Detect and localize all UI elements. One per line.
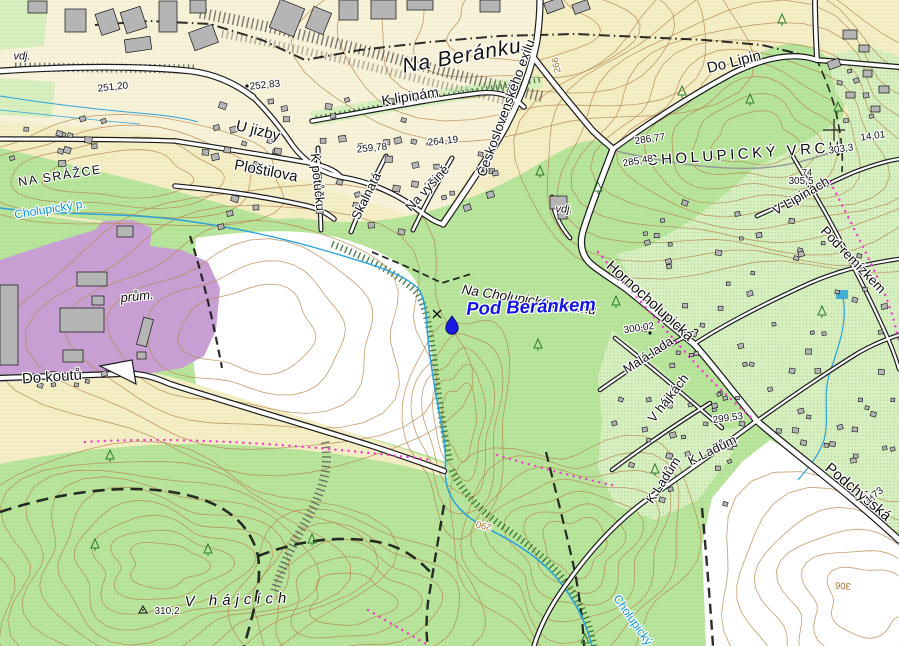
house	[717, 392, 722, 396]
house	[330, 113, 336, 118]
house	[59, 375, 66, 381]
house	[250, 167, 257, 173]
house	[843, 119, 848, 123]
house	[268, 99, 274, 104]
house	[682, 303, 687, 308]
house	[353, 202, 359, 207]
house	[666, 453, 673, 460]
house	[253, 161, 259, 166]
building	[77, 272, 107, 286]
house	[739, 421, 745, 426]
house	[821, 242, 825, 245]
house	[881, 303, 888, 309]
house	[281, 105, 288, 111]
house	[732, 442, 737, 446]
house	[726, 282, 730, 286]
house	[767, 387, 773, 392]
building	[117, 226, 133, 237]
house	[646, 438, 651, 442]
house	[227, 210, 234, 216]
house	[320, 138, 326, 143]
house	[394, 137, 402, 145]
house	[267, 139, 273, 144]
house	[681, 435, 685, 439]
building	[879, 86, 889, 93]
house	[84, 137, 92, 144]
house	[67, 133, 73, 138]
house	[891, 398, 895, 402]
house	[646, 397, 651, 402]
house	[450, 191, 455, 195]
house	[751, 271, 755, 275]
house	[666, 264, 671, 269]
house	[718, 306, 723, 310]
house	[398, 229, 405, 236]
building	[190, 0, 206, 13]
house	[792, 427, 799, 433]
building	[137, 352, 146, 359]
house	[211, 153, 220, 161]
building	[846, 92, 855, 98]
house	[325, 103, 332, 109]
house	[829, 441, 835, 446]
house	[58, 160, 66, 166]
house	[805, 349, 811, 354]
building	[65, 9, 86, 32]
building	[550, 196, 567, 209]
house	[739, 237, 743, 240]
building	[0, 285, 18, 365]
house	[412, 162, 420, 169]
house	[878, 369, 885, 375]
house	[715, 250, 722, 256]
building	[371, 0, 396, 19]
house	[688, 403, 693, 407]
house	[316, 208, 323, 214]
house	[492, 170, 498, 176]
house	[676, 351, 680, 355]
house	[441, 195, 447, 200]
house	[202, 149, 209, 155]
house	[338, 135, 346, 142]
house	[411, 139, 417, 144]
house	[882, 446, 887, 451]
house	[793, 256, 799, 261]
topographic-map[interactable]: Na BeránkuDo LipinCHOLUPICKÝ VRCHNa Chol…	[0, 0, 899, 646]
house	[756, 232, 762, 238]
house	[715, 466, 720, 470]
building	[558, 212, 567, 219]
house	[735, 211, 741, 216]
house	[776, 428, 782, 433]
house	[878, 330, 883, 334]
house	[411, 181, 419, 188]
house	[478, 152, 483, 157]
house	[798, 408, 805, 414]
house	[224, 147, 231, 154]
house	[857, 253, 862, 258]
building	[28, 1, 47, 13]
house	[852, 427, 858, 432]
building	[407, 0, 433, 10]
house	[259, 169, 265, 174]
house	[85, 379, 89, 383]
house	[772, 322, 776, 326]
house	[24, 127, 29, 131]
house	[738, 343, 744, 349]
house	[847, 69, 852, 73]
building	[159, 1, 177, 32]
house	[654, 233, 659, 237]
building	[871, 106, 880, 112]
house	[822, 332, 826, 336]
house	[384, 140, 390, 145]
house	[835, 290, 840, 294]
house	[641, 327, 647, 332]
building	[863, 70, 872, 77]
house	[389, 99, 394, 104]
house	[392, 185, 400, 192]
house	[274, 148, 281, 154]
house	[789, 368, 796, 374]
house	[853, 454, 858, 458]
house	[863, 93, 869, 98]
house	[385, 156, 393, 163]
house	[50, 371, 56, 376]
house	[865, 406, 870, 410]
building	[63, 350, 83, 362]
building	[339, 0, 358, 20]
house	[74, 383, 79, 387]
house	[368, 222, 375, 228]
house	[815, 368, 821, 373]
house	[810, 331, 814, 335]
house	[660, 218, 665, 222]
house	[712, 403, 718, 409]
house	[434, 164, 440, 169]
house	[668, 243, 672, 247]
map-canvas	[0, 0, 899, 646]
house	[862, 287, 867, 292]
house	[642, 427, 648, 432]
house	[253, 205, 259, 210]
house	[806, 415, 811, 419]
house	[51, 382, 56, 386]
house	[858, 398, 863, 402]
house	[800, 440, 807, 446]
building	[859, 45, 869, 52]
house	[670, 363, 675, 368]
house	[742, 362, 747, 367]
building	[60, 308, 104, 332]
building	[843, 30, 857, 39]
house	[218, 224, 225, 230]
building	[480, 0, 500, 12]
house	[689, 353, 693, 357]
house	[869, 114, 874, 119]
house	[703, 422, 708, 426]
house	[789, 218, 795, 223]
house	[723, 396, 728, 400]
house	[690, 331, 697, 337]
building	[92, 296, 104, 305]
house	[824, 443, 829, 447]
house	[700, 323, 705, 327]
house	[667, 403, 673, 408]
house	[283, 117, 289, 122]
house	[643, 232, 647, 236]
house	[92, 144, 98, 149]
house	[837, 80, 843, 85]
house	[358, 144, 363, 148]
house	[735, 396, 739, 400]
house	[694, 352, 698, 356]
